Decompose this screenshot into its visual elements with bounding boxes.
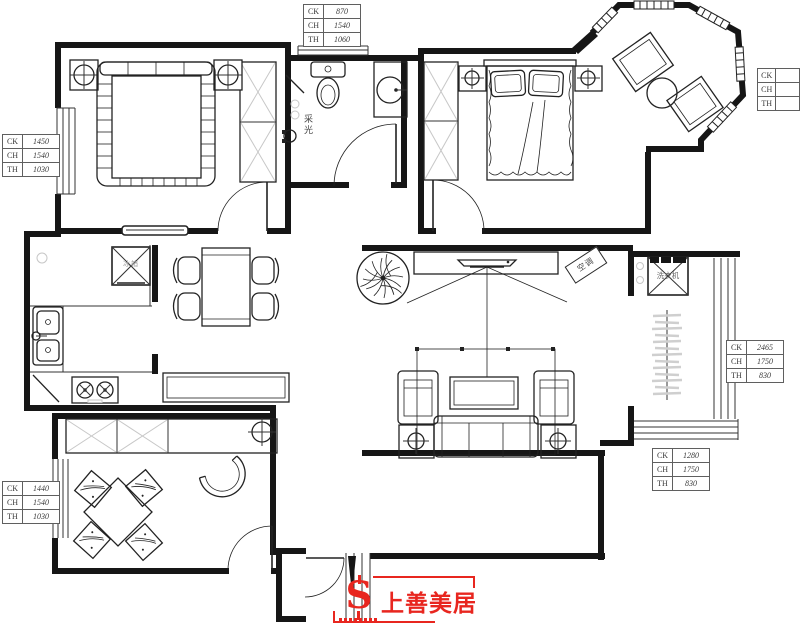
floor-plan-drawing (0, 0, 800, 625)
logo-brand-name: 上善美居 (381, 584, 477, 618)
patterned-chair (75, 471, 112, 508)
patterned-chair (126, 470, 163, 507)
door-bedroom-b (433, 180, 484, 231)
dim-table-top-center: CK870 CH1540 TH1060 (303, 4, 361, 47)
bathroom-light-label: 采光 (302, 114, 315, 150)
towel-ring (291, 100, 299, 108)
gas-stove (72, 377, 118, 403)
nightstand-lamp (459, 66, 486, 91)
coffee-table (450, 377, 518, 409)
drying-rack (652, 310, 682, 400)
fridge-label: 冰箱 (112, 259, 150, 269)
toilet (311, 62, 345, 108)
washing-machine-label: 洗衣机 (646, 270, 690, 281)
sideboard (163, 373, 289, 402)
towel-ring (291, 111, 299, 119)
tufted-bed (97, 62, 215, 186)
dining-table (202, 248, 250, 326)
tv-cabinet (414, 252, 558, 274)
plant (357, 252, 409, 304)
walls (24, 5, 743, 622)
dining-chair (252, 293, 279, 320)
corner-cabinet (33, 375, 59, 402)
octagon-balcony-furniture (613, 32, 723, 131)
dining-set (163, 248, 289, 402)
double-bed (484, 60, 576, 180)
window-bathroom (298, 46, 368, 55)
brand-logo: S 上善美居 (333, 576, 475, 623)
kitchen-sink (32, 307, 63, 365)
tv-view-lines (407, 267, 567, 377)
bathroom-fixtures (282, 62, 407, 143)
logo-s-icon: S (341, 577, 377, 619)
dim-table-left-upper: CK1450 CH1540 TH1030 (2, 134, 60, 177)
tub-chair (197, 455, 253, 504)
wardrobe (424, 62, 458, 180)
dim-table-right-middle: CK2465 CH1750 TH830 (726, 340, 784, 383)
tea-room-furniture (66, 418, 277, 560)
square-table (84, 478, 152, 546)
door-tea-room (228, 526, 272, 570)
bedroom-b-furniture (424, 60, 602, 180)
door-bathroom (334, 124, 396, 186)
armchair (534, 371, 574, 424)
patterned-chair (74, 522, 111, 559)
round-table (647, 78, 677, 108)
tv (458, 260, 516, 267)
logo-subtext-dashes (339, 618, 379, 621)
armchair (398, 371, 438, 424)
living-room-furniture (357, 252, 576, 458)
dining-chair (252, 257, 279, 284)
window-laundry-right (714, 258, 735, 419)
patterned-chair (126, 524, 163, 561)
bedroom-a-furniture (70, 60, 276, 186)
dim-table-right-top: CK CH TH (757, 68, 800, 111)
faucet (637, 277, 644, 284)
window-laundry-bottom (634, 419, 738, 440)
dining-chair (174, 293, 201, 320)
dining-chair (174, 257, 201, 284)
nightstand-lamp (214, 60, 242, 90)
faucet (637, 263, 644, 270)
cabinet-strip (66, 419, 277, 453)
floor-plan: CK870 CH1540 TH1060 CK1450 CH1540 TH1030… (0, 0, 800, 625)
dim-table-right-lower: CK1280 CH1750 TH830 (652, 448, 710, 491)
nightstand-lamp (70, 60, 98, 90)
ceiling-light (37, 253, 47, 263)
octagon-windows (592, 1, 744, 132)
dim-table-left-lower: CK1440 CH1540 TH1030 (2, 481, 60, 524)
wardrobe (240, 62, 276, 182)
nightstand-lamp (575, 66, 602, 91)
lounge-chair (613, 32, 674, 91)
door-bedroom-a (218, 182, 267, 231)
